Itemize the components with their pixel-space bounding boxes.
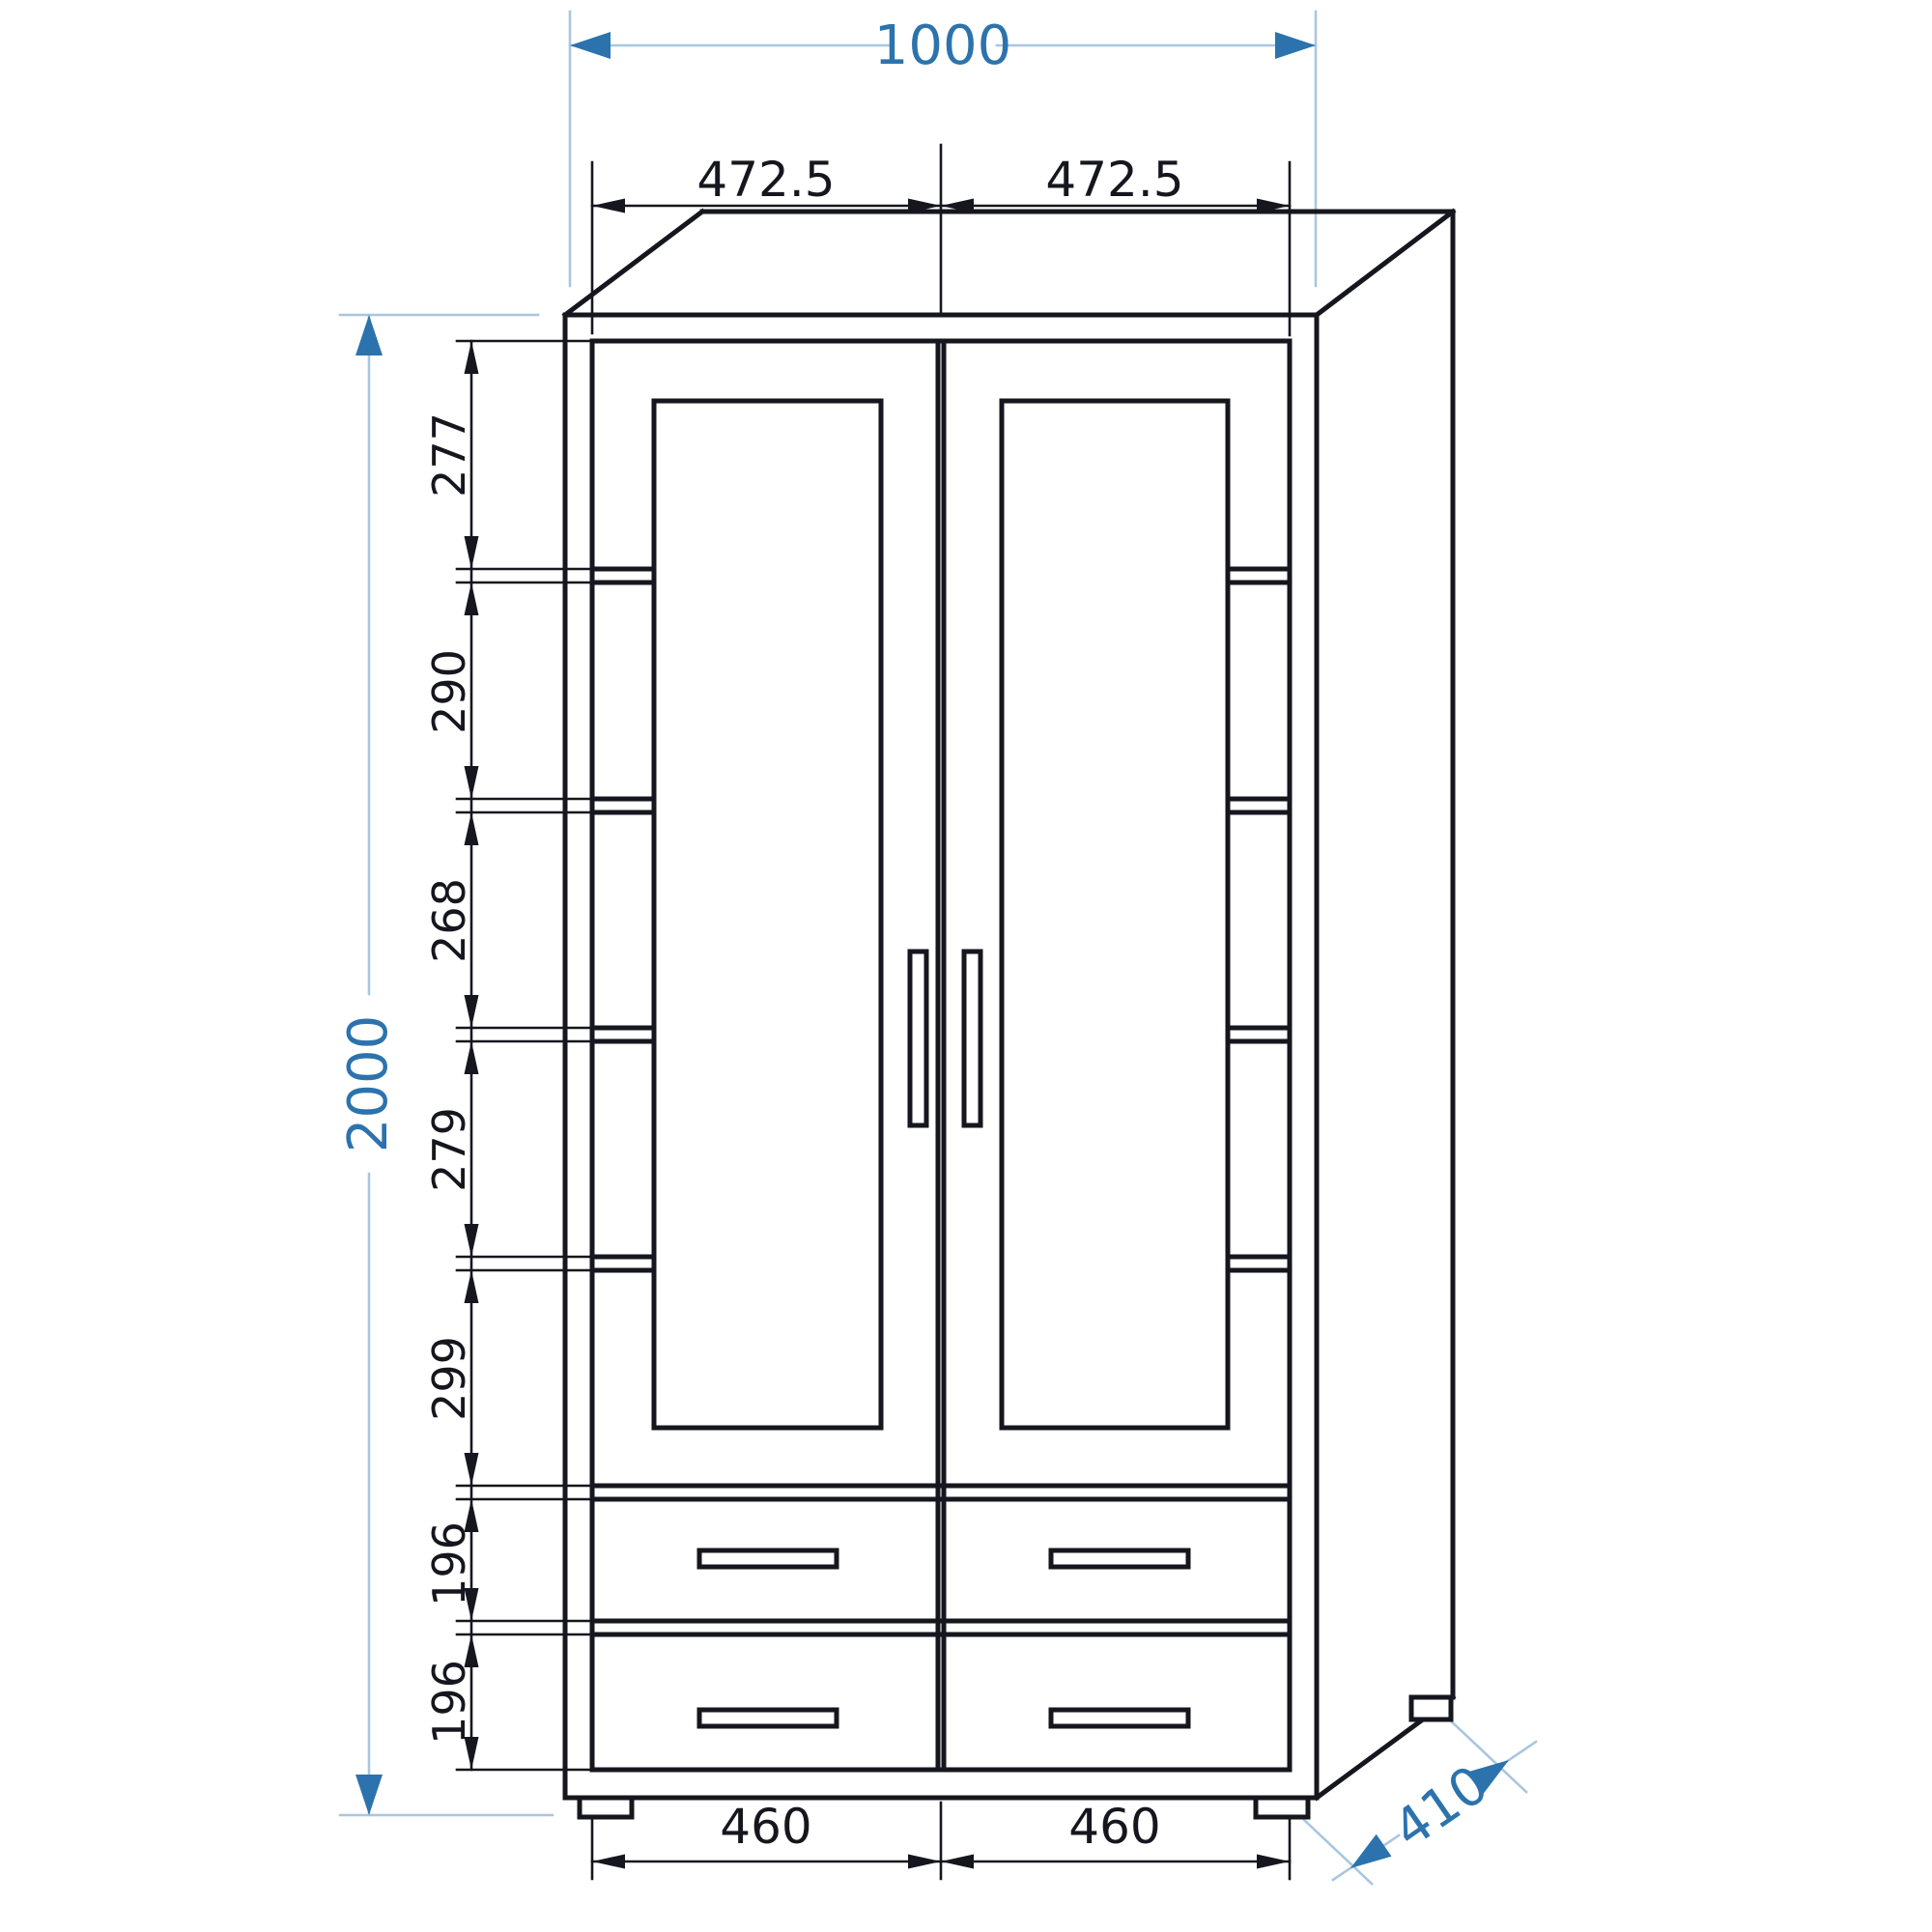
- dim-label-door-width-left: 472.5: [696, 152, 835, 208]
- cabinet-technical-drawing: 1000 472.5 472.5 2000 277 290 268 279 29…: [0, 0, 1932, 1932]
- dim-label-chain-290: 290: [423, 649, 475, 734]
- dimension-arrowheads: [355, 32, 1509, 1869]
- technical-drawing-page: 1000 472.5 472.5 2000 277 290 268 279 29…: [0, 0, 1932, 1932]
- dim-label-chain-299: 299: [423, 1336, 475, 1421]
- dim-label-chain-277: 277: [423, 412, 475, 497]
- dim-label-chain-196-upper: 196: [423, 1521, 475, 1606]
- dim-label-chain-268: 268: [423, 878, 475, 963]
- dim-label-chain-279: 279: [423, 1107, 475, 1192]
- dim-label-total-width: 1000: [874, 14, 1012, 77]
- dim-label-drawer-width-right: 460: [1068, 1799, 1160, 1855]
- dim-label-drawer-width-left: 460: [720, 1799, 811, 1855]
- dim-label-door-width-right: 472.5: [1045, 152, 1183, 208]
- dim-label-chain-196-lower: 196: [423, 1660, 475, 1745]
- dim-label-total-height: 2000: [337, 1015, 400, 1153]
- cabinet-panels-and-handles: [580, 401, 1451, 1817]
